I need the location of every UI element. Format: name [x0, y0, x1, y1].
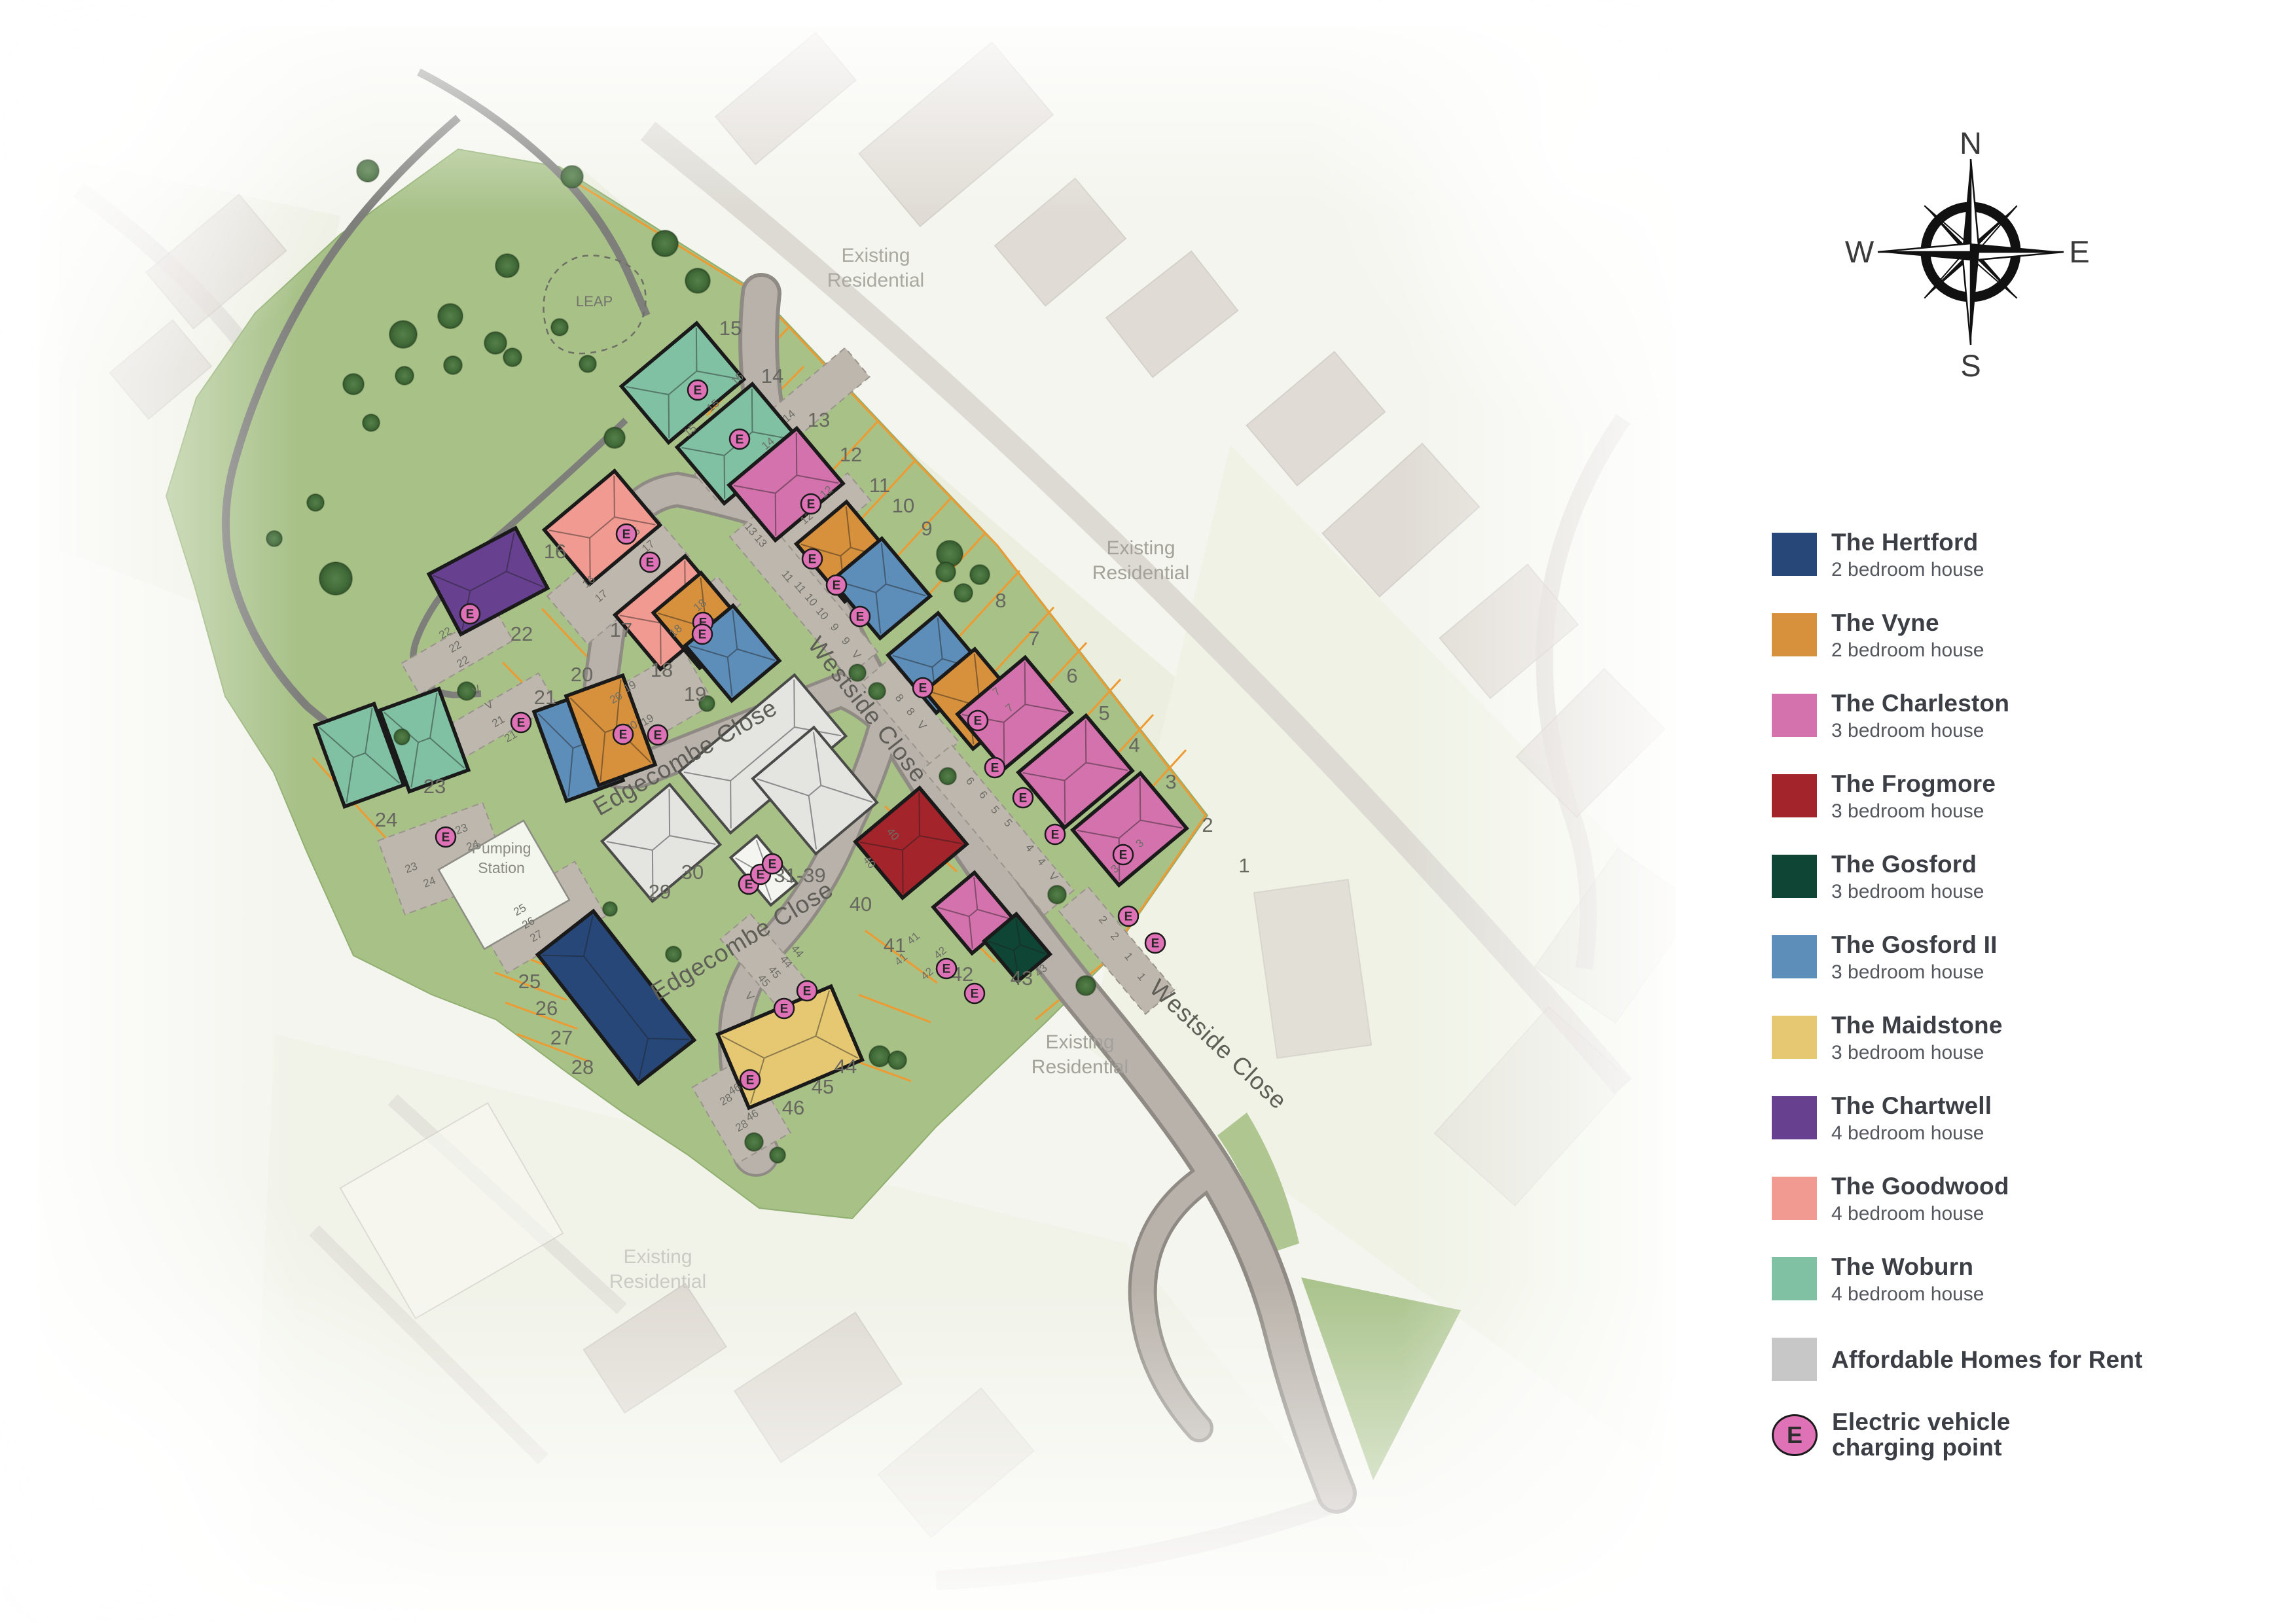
tree-icon — [936, 562, 956, 582]
tree-icon — [954, 584, 973, 602]
legend-item-description: 3 bedroom house — [1831, 721, 2009, 741]
site-plan-page: 1515151414121213131111101099V88V77665544… — [0, 0, 2296, 1623]
tree-icon — [363, 414, 380, 431]
legend-color-swatch — [1772, 935, 1817, 978]
plot-number: 28 — [571, 1056, 594, 1079]
area-label: LEAP — [576, 293, 613, 310]
svg-text:E: E — [757, 868, 765, 882]
svg-text:E: E — [466, 608, 475, 622]
plot-number: 13 — [808, 408, 830, 431]
ev-charging-point-marker: E — [827, 575, 846, 595]
area-label: Existing — [1045, 1031, 1114, 1053]
ev-charging-point-marker: E — [965, 984, 984, 1003]
svg-text:E: E — [856, 611, 865, 624]
legend-item: The Woburn 4 bedroom house — [1772, 1257, 2282, 1302]
ev-charging-point-marker: E — [850, 607, 870, 626]
ev-charging-point-marker: E — [797, 981, 817, 1001]
ev-charging-point-marker: E — [1113, 845, 1133, 865]
tree-icon — [343, 374, 364, 395]
legend-ev-line1: Electric vehicle — [1832, 1410, 2011, 1435]
tree-icon — [319, 562, 352, 595]
legend-item-name: The Frogmore — [1831, 772, 1996, 797]
svg-text:E: E — [780, 1003, 789, 1016]
tree-icon — [770, 1147, 785, 1163]
tree-icon — [652, 230, 678, 257]
svg-text:E: E — [442, 831, 450, 845]
area-label: Existing — [1106, 537, 1175, 559]
ev-charging-point-marker: E — [1013, 788, 1033, 808]
plot-number: 6 — [1066, 664, 1077, 687]
plot-number: 24 — [375, 808, 397, 831]
legend-color-swatch — [1772, 1096, 1817, 1139]
legend-item-description: 2 bedroom house — [1831, 641, 1984, 660]
tree-icon — [745, 1133, 763, 1151]
compass-west-label: W — [1845, 234, 1874, 269]
compass-east-label: E — [2069, 234, 2089, 269]
plot-number: 27 — [550, 1026, 573, 1049]
legend-color-swatch — [1772, 1016, 1817, 1059]
ev-charging-point-marker: E — [762, 854, 782, 874]
tree-icon — [495, 254, 519, 277]
svg-text:E: E — [919, 682, 927, 696]
legend-item: Affordable Homes for Rent — [1772, 1338, 2282, 1382]
plot-number: 7 — [1028, 627, 1039, 650]
area-label: Residential — [827, 270, 924, 291]
legend-ev-line2: charging point — [1832, 1435, 2011, 1461]
ev-charging-point-marker: E — [968, 711, 988, 730]
legend-item-name: The Gosford II — [1831, 933, 1998, 958]
svg-text:E: E — [1051, 829, 1060, 842]
tree-icon — [604, 427, 625, 448]
plot-number: 10 — [892, 494, 914, 517]
area-label: Existing — [623, 1246, 692, 1268]
ev-charging-point-marker: E — [774, 999, 794, 1018]
legend-color-swatch — [1772, 533, 1817, 576]
ev-charging-point-marker: E — [937, 959, 956, 978]
area-label: Existing — [841, 245, 910, 266]
legend-item: The Hertford 2 bedroom house — [1772, 533, 2282, 577]
svg-text:E: E — [746, 1074, 755, 1088]
svg-text:E: E — [1119, 849, 1128, 863]
legend-item-description: 3 bedroom house — [1831, 882, 1984, 902]
plot-number: 18 — [651, 658, 673, 681]
tree-icon — [1048, 885, 1066, 904]
ev-charging-icon: E — [1772, 1414, 1818, 1456]
ev-charging-point-marker: E — [692, 624, 712, 644]
legend-item-description: 4 bedroom house — [1831, 1124, 1992, 1143]
legend-panel: The Hertford 2 bedroom house The Vyne 2 … — [1772, 533, 2282, 1493]
svg-text:E: E — [1151, 937, 1160, 951]
legend-item-description: 3 bedroom house — [1831, 802, 1996, 821]
tree-icon — [438, 304, 463, 329]
plot-number: 1 — [1238, 854, 1249, 877]
plot-number: 2 — [1202, 813, 1213, 836]
plot-number: 40 — [850, 893, 872, 916]
legend-item-name: The Goodwood — [1831, 1174, 2009, 1200]
legend-item-name: Affordable Homes for Rent — [1831, 1347, 2143, 1373]
svg-text:E: E — [698, 628, 707, 642]
ev-charging-point-marker: E — [985, 758, 1005, 777]
svg-text:E: E — [768, 858, 777, 872]
legend-color-swatch — [1772, 774, 1817, 817]
plot-number: 11 — [869, 474, 890, 497]
ev-charging-point-marker: E — [617, 524, 636, 544]
plot-number: 21 — [534, 686, 556, 709]
tree-icon — [503, 348, 522, 366]
plot-number: 19 — [684, 683, 706, 705]
svg-text:E: E — [833, 579, 841, 593]
legend-item-description: 3 bedroom house — [1831, 1043, 2003, 1063]
compass-north-label: N — [1960, 126, 1982, 160]
plot-number: 5 — [1098, 702, 1109, 724]
ev-charging-point-marker: E — [648, 725, 668, 745]
legend-item-name: The Gosford — [1831, 852, 1984, 878]
legend-item: The Vyne 2 bedroom house — [1772, 613, 2282, 658]
plot-number: 8 — [995, 589, 1006, 612]
legend-item: The Charleston 3 bedroom house — [1772, 694, 2282, 738]
legend-item: The Gosford 3 bedroom house — [1772, 855, 2282, 899]
plot-number: 25 — [518, 970, 541, 993]
legend-item-name: The Chartwell — [1831, 1094, 1992, 1119]
plot-number: 46 — [782, 1096, 804, 1119]
plot-number: 22 — [511, 622, 533, 645]
area-label: Station — [478, 859, 525, 876]
tree-icon — [307, 494, 324, 511]
ev-charging-point-marker: E — [1119, 906, 1138, 926]
area-label: Residential — [1092, 562, 1189, 584]
svg-text:E: E — [991, 762, 999, 776]
plot-number: 16 — [544, 540, 566, 563]
svg-text:E: E — [803, 985, 812, 999]
svg-text:E: E — [646, 556, 655, 570]
svg-text:E: E — [622, 528, 631, 542]
ev-charging-point-marker: E — [511, 713, 531, 732]
svg-text:E: E — [654, 729, 662, 743]
plot-number: 20 — [571, 663, 593, 686]
ev-charging-point-marker: E — [688, 380, 708, 400]
svg-text:E: E — [808, 553, 817, 567]
plot-number: 9 — [921, 517, 932, 540]
ev-charging-point-marker: E — [1045, 825, 1065, 844]
tree-icon — [869, 1046, 890, 1067]
tree-icon — [484, 332, 507, 354]
plot-number: 45 — [812, 1075, 834, 1098]
tree-icon — [666, 946, 681, 962]
ev-charging-point-marker: E — [740, 1070, 760, 1090]
legend-item: The Goodwood 4 bedroom house — [1772, 1177, 2282, 1221]
plot-number: 23 — [423, 775, 446, 798]
plot-number: 29 — [649, 880, 671, 903]
tree-icon — [970, 565, 990, 584]
svg-text:E: E — [517, 717, 526, 730]
tree-icon — [888, 1051, 906, 1069]
tree-icon — [603, 902, 617, 916]
legend-item-description: 4 bedroom house — [1831, 1204, 2009, 1224]
svg-text:E: E — [1124, 910, 1133, 924]
plot-number: 3 — [1165, 770, 1176, 793]
svg-text:E: E — [694, 384, 702, 398]
legend-item: The Maidstone 3 bedroom house — [1772, 1016, 2282, 1060]
plot-number: 14 — [761, 365, 783, 387]
plot-number: 26 — [535, 997, 558, 1020]
ev-charging-point-marker: E — [613, 724, 633, 744]
legend-color-swatch — [1772, 855, 1817, 898]
plot-number: 44 — [834, 1055, 857, 1078]
tree-icon — [444, 356, 462, 374]
legend-item: The Gosford II 3 bedroom house — [1772, 935, 2282, 980]
legend-item-name: The Maidstone — [1831, 1013, 2003, 1039]
svg-text:E: E — [971, 988, 979, 1001]
legend-item-name: The Woburn — [1831, 1255, 1984, 1280]
svg-text:E: E — [1019, 792, 1028, 806]
legend-item: The Frogmore 3 bedroom house — [1772, 774, 2282, 819]
plot-number: 12 — [840, 443, 862, 466]
plot-number: 15 — [719, 317, 742, 340]
tree-icon — [395, 366, 414, 385]
legend-color-swatch — [1772, 613, 1817, 656]
plot-number: 43 — [1011, 967, 1033, 990]
svg-text:E: E — [619, 728, 628, 742]
ev-charging-point-marker: E — [640, 552, 660, 572]
legend-color-swatch — [1772, 1177, 1817, 1220]
legend-item-name: The Hertford — [1831, 530, 1984, 556]
tree-icon — [939, 768, 956, 785]
plot-number: 41 — [884, 934, 906, 957]
tree-icon — [685, 268, 710, 293]
ev-charging-point-marker: E — [730, 429, 749, 449]
svg-text:E: E — [736, 433, 744, 447]
svg-text:E: E — [942, 963, 951, 976]
compass-south-label: S — [1960, 348, 1981, 383]
plot-number: 4 — [1128, 734, 1139, 757]
ev-charging-point-marker: E — [913, 678, 933, 698]
legend-color-swatch — [1772, 694, 1817, 737]
plot-number: 17 — [610, 618, 632, 641]
legend-item-description: 2 bedroom house — [1831, 560, 1984, 580]
legend-item: The Chartwell 4 bedroom house — [1772, 1096, 2282, 1141]
ev-charging-point-marker: E — [436, 827, 456, 847]
tree-icon — [394, 729, 410, 745]
legend-color-swatch — [1772, 1257, 1817, 1300]
tree-icon — [579, 355, 596, 372]
ev-charging-point-marker: E — [460, 604, 480, 624]
legend-item-description: 3 bedroom house — [1831, 963, 1998, 982]
plot-number: 30 — [681, 861, 704, 883]
tree-icon — [389, 321, 417, 348]
tree-icon — [1076, 976, 1096, 995]
svg-text:E: E — [974, 715, 982, 728]
area-label: Residential — [1031, 1056, 1128, 1078]
legend-item-name: The Vyne — [1831, 611, 1984, 636]
tree-icon — [551, 319, 568, 336]
legend-color-swatch — [1772, 1338, 1817, 1381]
legend-item-ev-charging: E Electric vehicle charging point — [1772, 1413, 2282, 1457]
legend-item-name: The Charleston — [1831, 691, 2009, 717]
svg-text:E: E — [807, 498, 816, 512]
ev-charging-point-marker: E — [802, 549, 822, 569]
area-label: Pumping — [472, 840, 531, 857]
ev-charging-point-marker: E — [1145, 933, 1165, 953]
legend-item-description: 4 bedroom house — [1831, 1285, 1984, 1304]
ev-charging-point-marker: E — [801, 494, 821, 514]
